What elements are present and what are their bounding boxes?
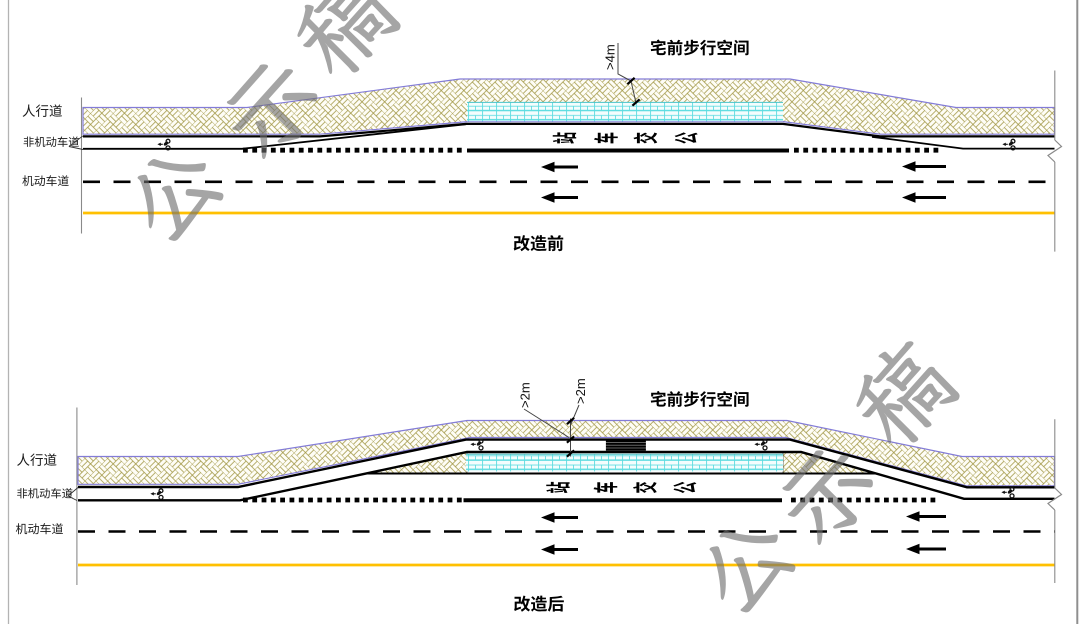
svg-text:>2m: >2m xyxy=(573,378,588,404)
svg-text:>2m: >2m xyxy=(518,382,533,408)
svg-text:>4m: >4m xyxy=(603,44,618,70)
